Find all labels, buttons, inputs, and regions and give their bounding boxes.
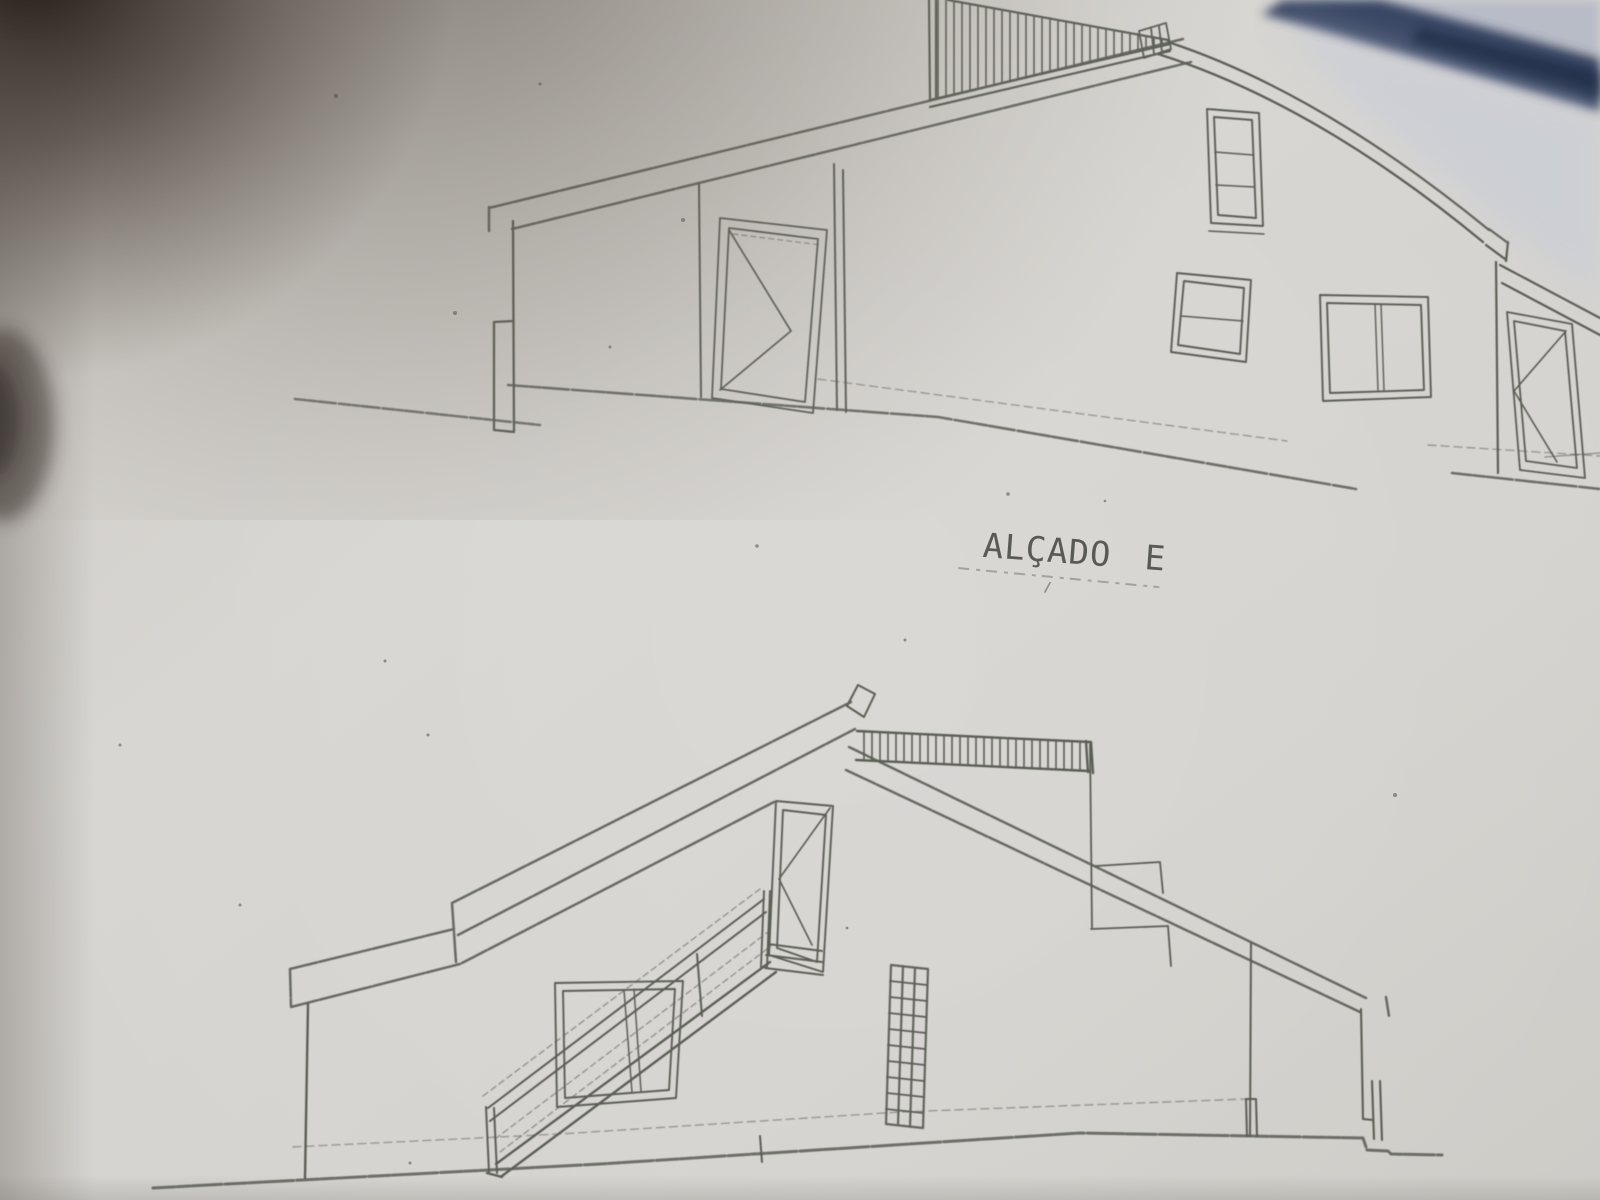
bottom-edge-shade [0, 1175, 1600, 1200]
left-edge-shade [0, 40, 95, 1200]
shadow-core [0, 0, 1300, 480]
photographed-elevation-sheet: ALÇADO E [0, 0, 1600, 1200]
elevation-photo-canvas: ALÇADO E [0, 0, 1600, 1200]
